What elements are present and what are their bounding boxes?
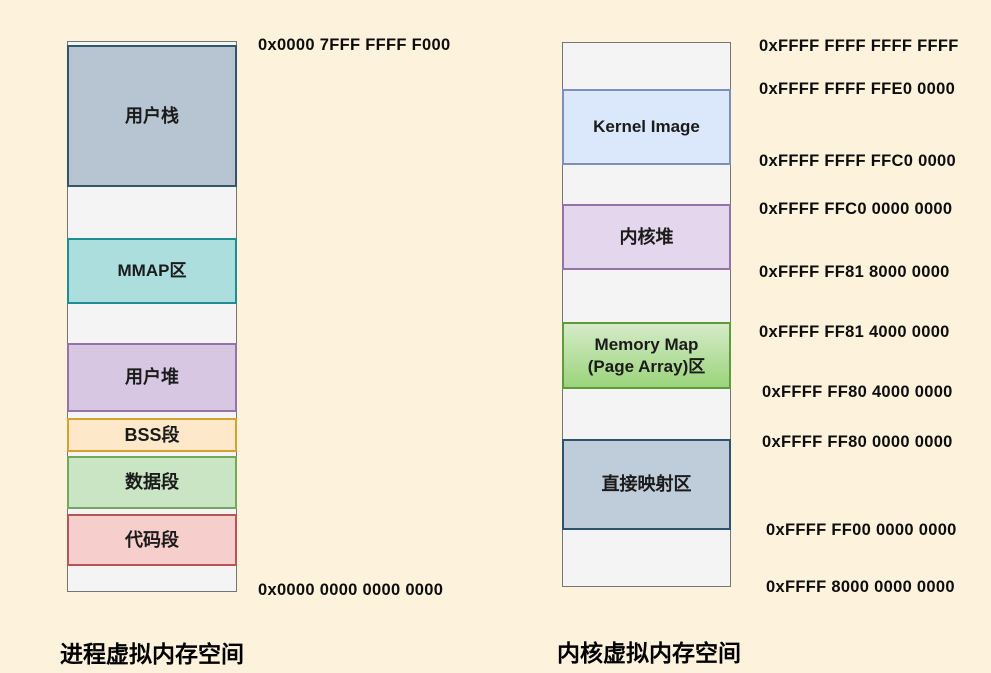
block-kernel-image: Kernel Image bbox=[562, 89, 731, 165]
address-kernel-3: 0xFFFF FFC0 0000 0000 bbox=[759, 200, 952, 219]
address-kernel-5: 0xFFFF FF81 4000 0000 bbox=[759, 323, 950, 342]
kernel-memory-column: Kernel Image 内核堆 Memory Map (Page Array)… bbox=[562, 42, 731, 587]
block-user-heap: 用户堆 bbox=[67, 343, 237, 412]
address-kernel-6: 0xFFFF FF80 4000 0000 bbox=[762, 383, 953, 402]
block-kernel-heap: 内核堆 bbox=[562, 204, 731, 270]
process-memory-column: 用户栈 MMAP区 用户堆 BSS段 数据段 代码段 bbox=[67, 41, 237, 592]
block-memory-map-page-array-label: Memory Map (Page Array)区 bbox=[588, 334, 705, 377]
address-kernel-1: 0xFFFF FFFF FFE0 0000 bbox=[759, 80, 955, 99]
block-data-segment: 数据段 bbox=[67, 456, 237, 509]
address-kernel-4: 0xFFFF FF81 8000 0000 bbox=[759, 263, 950, 282]
memory-layout-diagram: 用户栈 MMAP区 用户堆 BSS段 数据段 代码段 0x0000 7FFF F… bbox=[0, 0, 991, 673]
block-mmap-area-label: MMAP区 bbox=[118, 260, 187, 281]
block-code-segment-label: 代码段 bbox=[125, 529, 179, 552]
block-direct-mapping-area-label: 直接映射区 bbox=[602, 473, 692, 496]
block-user-heap-label: 用户堆 bbox=[125, 366, 179, 389]
address-kernel-7: 0xFFFF FF80 0000 0000 bbox=[762, 433, 953, 452]
block-direct-mapping-area: 直接映射区 bbox=[562, 439, 731, 530]
address-process-top: 0x0000 7FFF FFFF F000 bbox=[258, 36, 450, 55]
block-bss-segment-label: BSS段 bbox=[124, 424, 179, 447]
block-kernel-image-label: Kernel Image bbox=[593, 116, 700, 137]
block-bss-segment: BSS段 bbox=[67, 418, 237, 452]
block-code-segment: 代码段 bbox=[67, 514, 237, 566]
address-kernel-0: 0xFFFF FFFF FFFF FFFF bbox=[759, 37, 959, 56]
kernel-space-caption: 内核虚拟内存空间 bbox=[557, 634, 741, 668]
address-kernel-8: 0xFFFF FF00 0000 0000 bbox=[766, 521, 957, 540]
address-kernel-9: 0xFFFF 8000 0000 0000 bbox=[766, 578, 955, 597]
address-process-bottom: 0x0000 0000 0000 0000 bbox=[258, 581, 443, 600]
block-data-segment-label: 数据段 bbox=[125, 471, 179, 494]
block-memory-map-page-array: Memory Map (Page Array)区 bbox=[562, 322, 731, 389]
block-kernel-heap-label: 内核堆 bbox=[620, 226, 674, 249]
block-user-stack-label: 用户栈 bbox=[125, 105, 179, 128]
block-user-stack: 用户栈 bbox=[67, 45, 237, 187]
block-mmap-area: MMAP区 bbox=[67, 238, 237, 304]
process-space-caption: 进程虚拟内存空间 bbox=[60, 635, 244, 669]
address-kernel-2: 0xFFFF FFFF FFC0 0000 bbox=[759, 152, 956, 171]
